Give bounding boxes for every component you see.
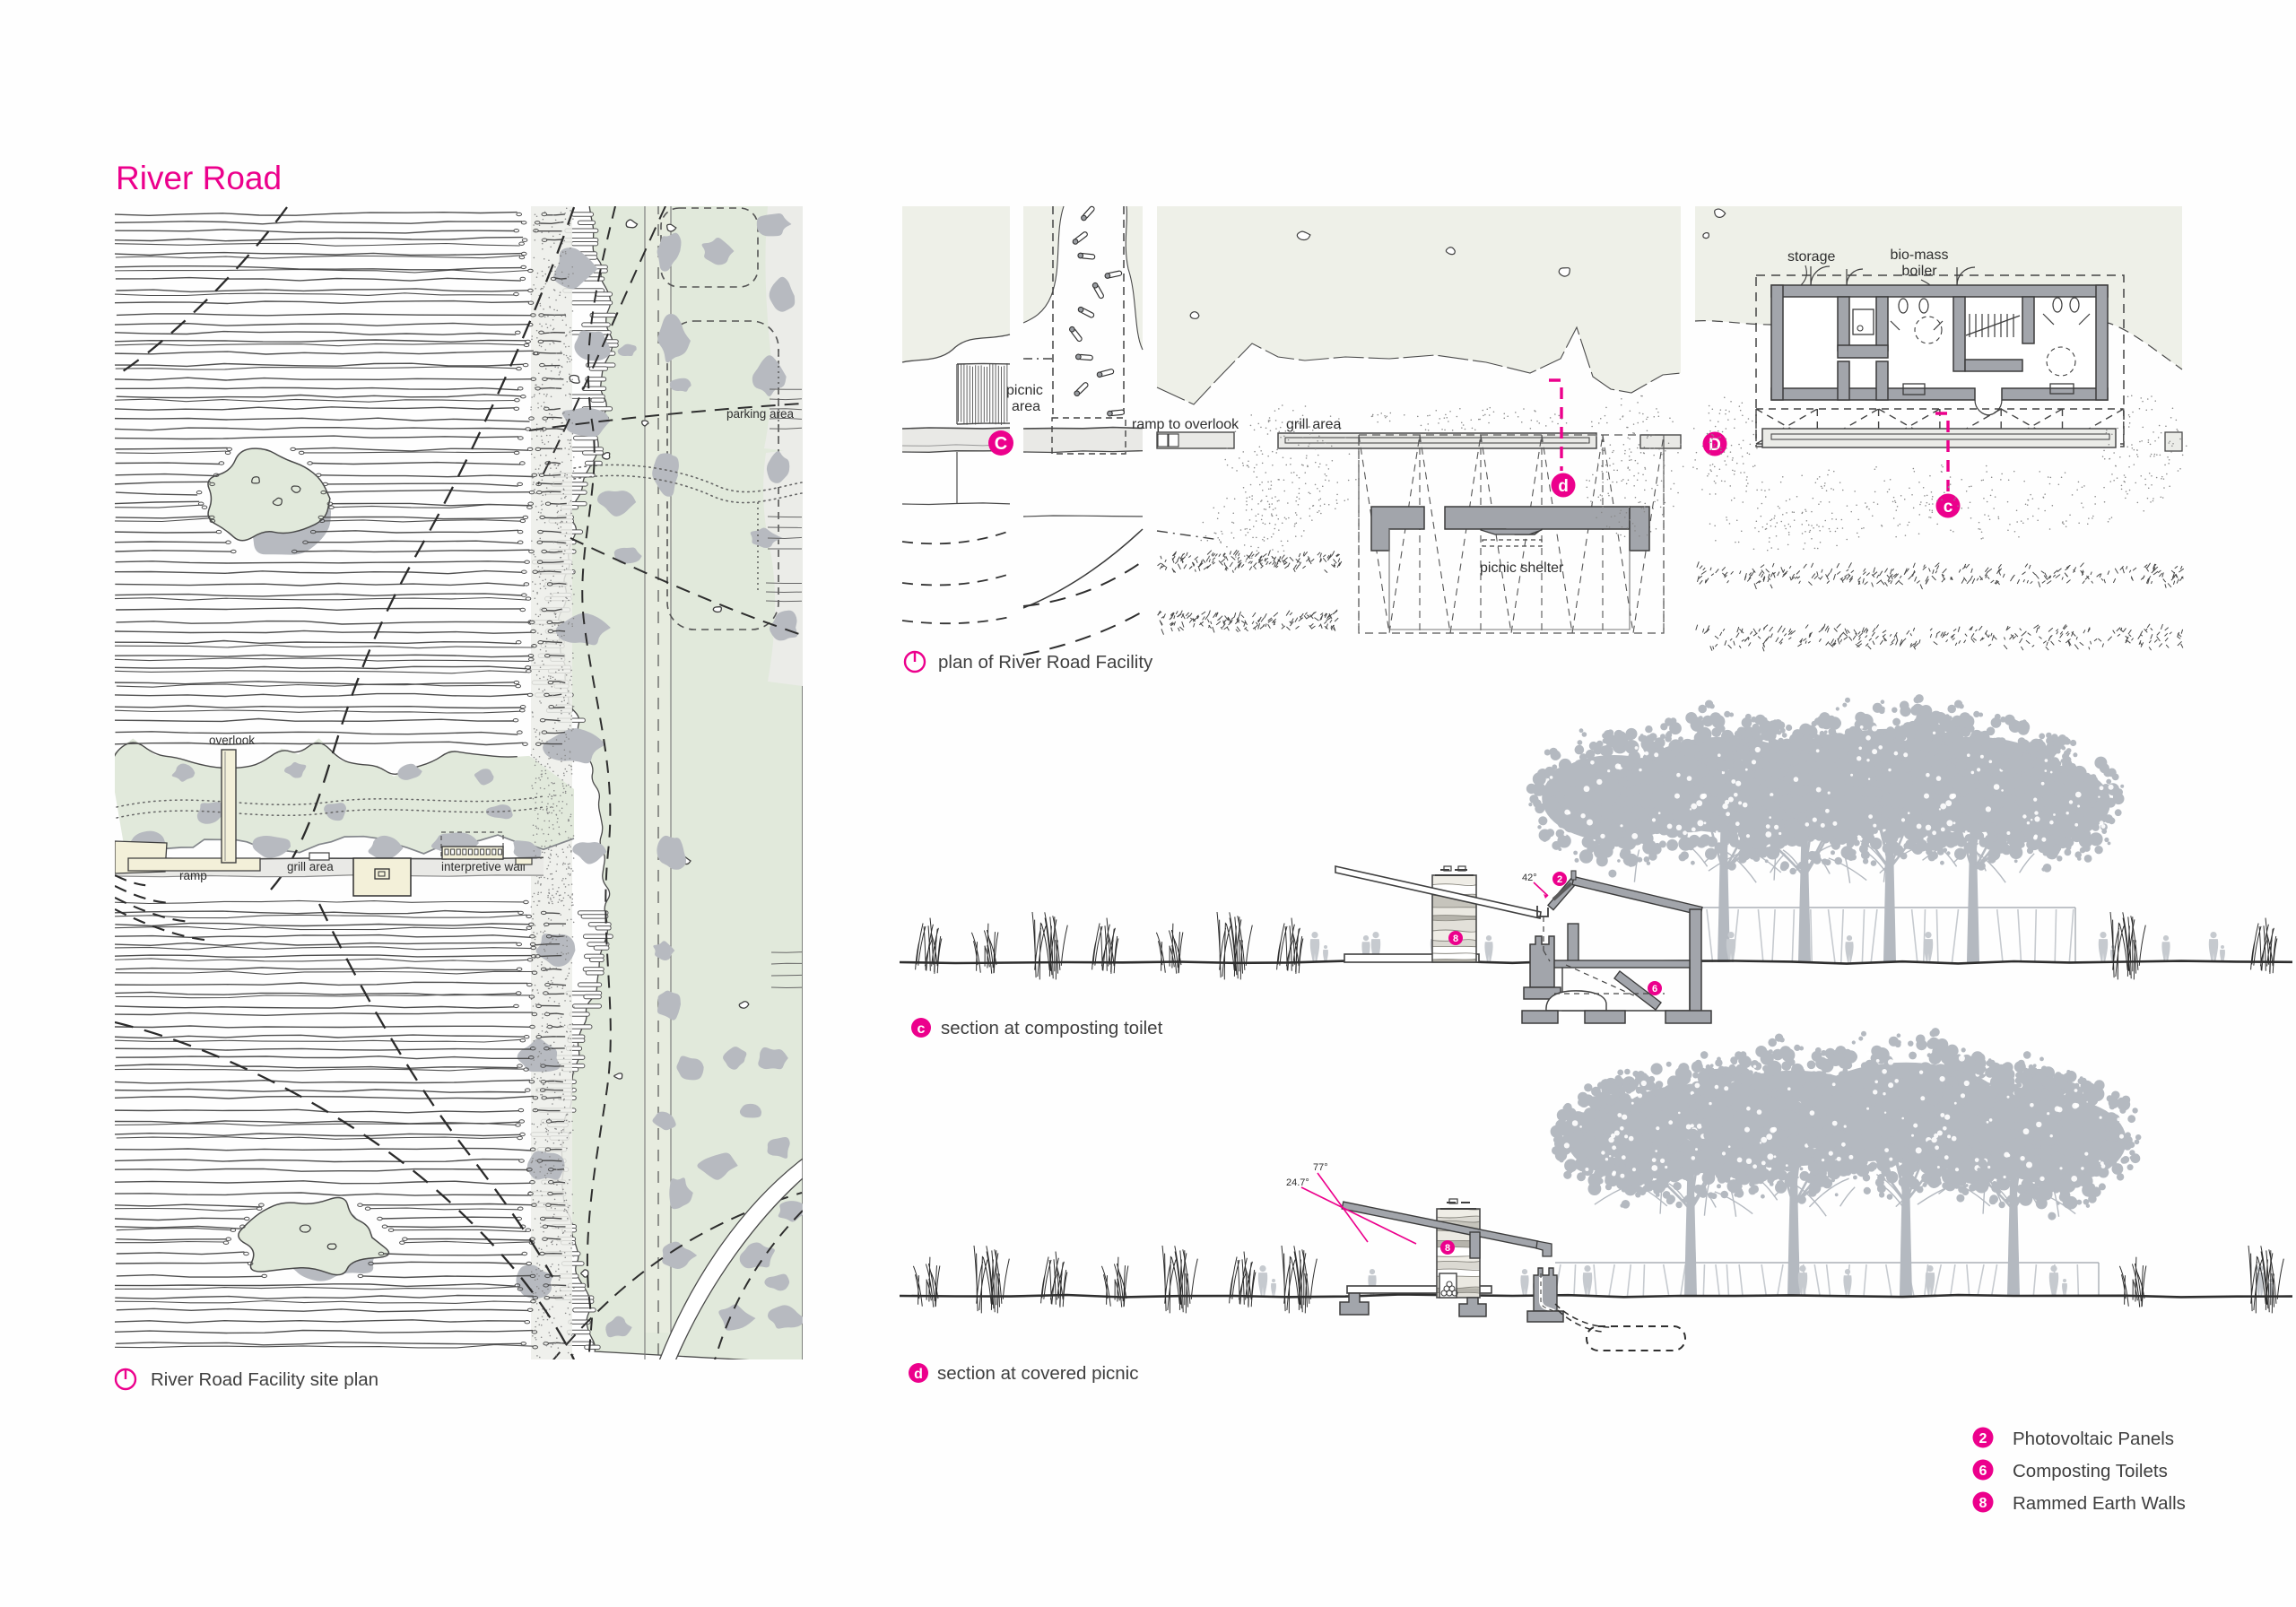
svg-text:picnic: picnic bbox=[1006, 383, 1043, 398]
svg-text:Composting Toilets: Composting Toilets bbox=[2013, 1461, 2168, 1481]
svg-text:c: c bbox=[1944, 498, 1953, 517]
svg-text:Photovoltaic Panels: Photovoltaic Panels bbox=[2013, 1429, 2174, 1449]
svg-text:42°: 42° bbox=[1522, 873, 1537, 883]
svg-text:interpretive wall: interpretive wall bbox=[441, 860, 526, 873]
svg-text:c: c bbox=[918, 1021, 926, 1037]
svg-text:2: 2 bbox=[1557, 874, 1562, 885]
svg-text:77°: 77° bbox=[1313, 1162, 1328, 1173]
svg-text:boiler: boiler bbox=[1901, 264, 1937, 279]
svg-text:section at composting toilet: section at composting toilet bbox=[941, 1018, 1163, 1038]
svg-text:River Road: River Road bbox=[116, 160, 282, 196]
svg-text:2: 2 bbox=[1979, 1431, 1987, 1446]
svg-text:storage: storage bbox=[1787, 249, 1835, 265]
svg-text:bio-mass: bio-mass bbox=[1891, 248, 1949, 263]
svg-text:area: area bbox=[1012, 399, 1040, 414]
svg-text:picnic shelter: picnic shelter bbox=[1480, 560, 1564, 576]
svg-text:d: d bbox=[1558, 477, 1569, 496]
svg-text:section at covered picnic: section at covered picnic bbox=[937, 1363, 1138, 1384]
svg-text:ramp to overlook: ramp to overlook bbox=[1132, 417, 1239, 432]
svg-text:8: 8 bbox=[1445, 1243, 1450, 1254]
svg-text:6: 6 bbox=[1979, 1464, 1987, 1479]
svg-text:8: 8 bbox=[1979, 1496, 1987, 1511]
svg-text:24.7°: 24.7° bbox=[1286, 1177, 1309, 1188]
svg-text:grill area: grill area bbox=[1286, 417, 1341, 432]
svg-text:River Road Facility site plan: River Road Facility site plan bbox=[151, 1369, 378, 1390]
svg-text:plan of River Road Facility: plan of River Road Facility bbox=[938, 652, 1153, 673]
svg-text:C: C bbox=[995, 434, 1007, 454]
svg-text:6: 6 bbox=[1652, 984, 1657, 995]
svg-text:d: d bbox=[914, 1367, 923, 1382]
svg-text:overlook: overlook bbox=[209, 734, 255, 747]
svg-text:grill area: grill area bbox=[287, 860, 334, 873]
svg-text:ramp: ramp bbox=[179, 869, 207, 882]
svg-text:8: 8 bbox=[1453, 934, 1458, 944]
svg-text:Rammed Earth Walls: Rammed Earth Walls bbox=[2013, 1493, 2186, 1514]
